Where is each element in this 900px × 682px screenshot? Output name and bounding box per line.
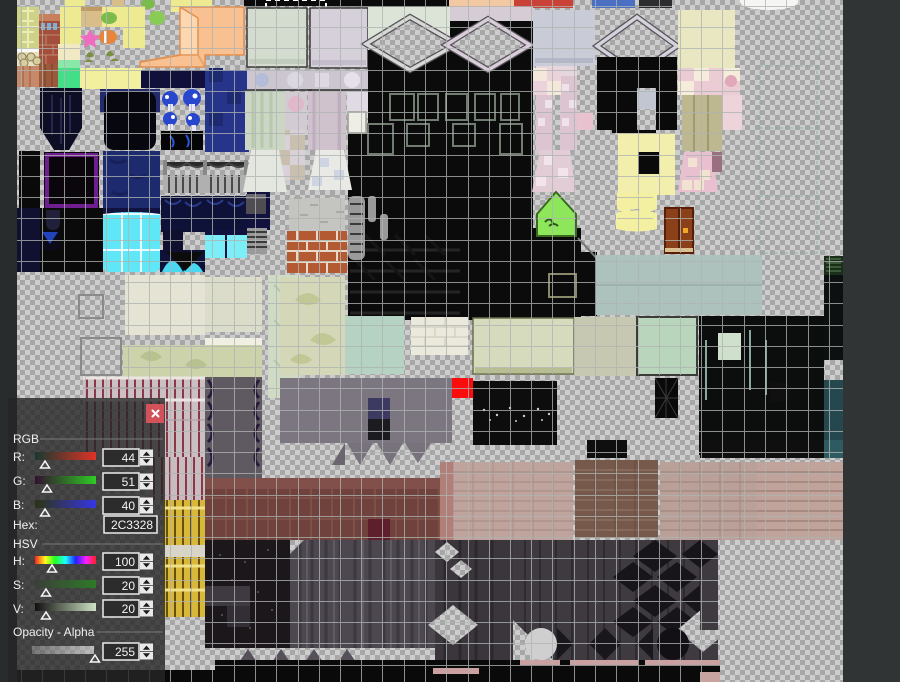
svg-text:H:: H:	[13, 554, 25, 568]
svg-text:V:: V:	[13, 602, 24, 616]
svg-text:S:: S:	[13, 578, 24, 592]
svg-text:44: 44	[122, 451, 136, 465]
svg-text:G:: G:	[13, 474, 26, 488]
svg-text:51: 51	[122, 475, 136, 489]
svg-text:Hex:: Hex:	[13, 518, 38, 532]
svg-text:2C3328: 2C3328	[111, 518, 153, 532]
svg-text:20: 20	[122, 579, 136, 593]
svg-text:20: 20	[122, 602, 136, 616]
svg-text:100: 100	[115, 555, 135, 569]
svg-text:B:: B:	[13, 498, 24, 512]
svg-text:HSV: HSV	[13, 537, 38, 551]
svg-text:255: 255	[115, 645, 135, 659]
svg-text:R:: R:	[13, 450, 25, 464]
svg-text:40: 40	[122, 499, 136, 513]
svg-text:RGB: RGB	[13, 432, 39, 446]
svg-text:Opacity - Alpha: Opacity - Alpha	[13, 625, 95, 639]
